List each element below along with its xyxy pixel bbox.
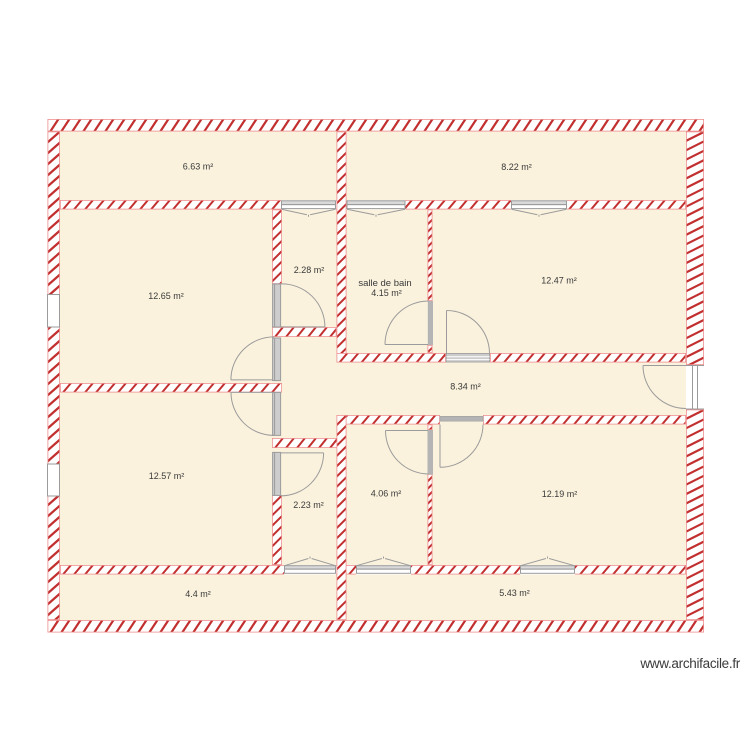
svg-text:8.22 m²: 8.22 m²	[501, 162, 532, 172]
svg-text:4.15 m²: 4.15 m²	[371, 288, 402, 298]
svg-text:2.28 m²: 2.28 m²	[294, 265, 325, 275]
svg-text:5.43 m²: 5.43 m²	[499, 588, 530, 598]
svg-text:2.23 m²: 2.23 m²	[293, 500, 324, 510]
svg-text:4.06 m²: 4.06 m²	[371, 489, 402, 499]
svg-text:6.63 m²: 6.63 m²	[183, 162, 214, 172]
svg-text:4.4 m²: 4.4 m²	[185, 589, 211, 599]
svg-text:12.47 m²: 12.47 m²	[541, 276, 577, 286]
svg-text:12.19 m²: 12.19 m²	[542, 489, 578, 499]
svg-text:12.65 m²: 12.65 m²	[148, 291, 184, 301]
svg-text:8.34 m²: 8.34 m²	[450, 382, 481, 392]
svg-text:www.archifacile.fr: www.archifacile.fr	[639, 656, 740, 671]
svg-text:12.57 m²: 12.57 m²	[149, 471, 185, 481]
